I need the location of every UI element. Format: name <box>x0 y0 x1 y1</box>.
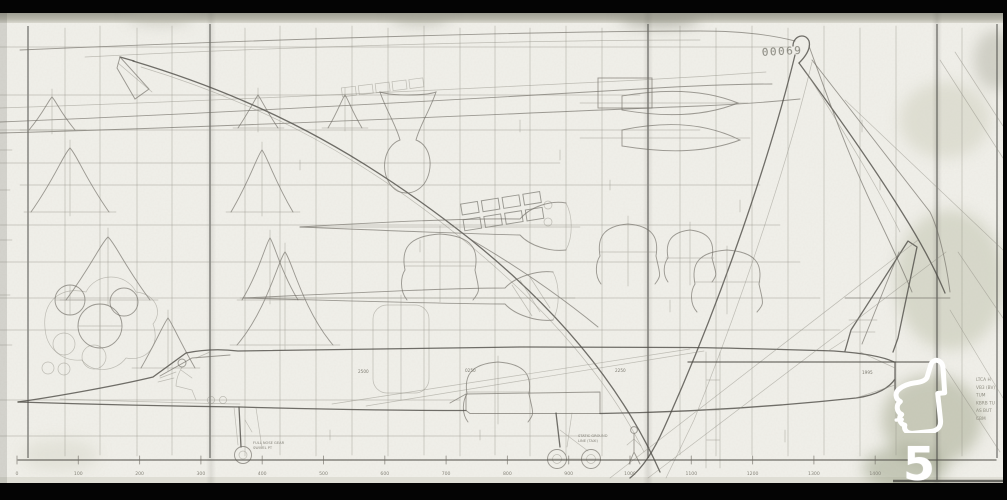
margin-note-line: VB3 (BV) <box>976 385 995 391</box>
margin-note-line: KBRB TU <box>976 400 995 406</box>
scale-station-label: 100 <box>74 471 83 477</box>
scale-station-label: 700 <box>442 471 451 477</box>
handwritten-number: 00069 <box>761 44 802 59</box>
dim-label: 2500 <box>358 369 369 374</box>
scale-station-label: 1400 <box>869 471 881 477</box>
dim-label: 0250 <box>465 368 476 373</box>
scale-station-label: 1300 <box>808 471 820 477</box>
margin-note-line: LTCA H <box>976 377 991 383</box>
blueprint-drawing: 0100200300400500600700800900100011001200… <box>0 13 1003 483</box>
margin-note-line: CBM <box>976 416 986 422</box>
scale-station-label: 400 <box>258 471 267 477</box>
scale-station-label: 800 <box>503 471 512 477</box>
scale-station-label: 0 <box>16 471 19 477</box>
scale-station-label: 300 <box>197 471 206 477</box>
nose-gear-note: FULL NOSE GEAR <box>253 441 285 445</box>
scale-station-label: 1000 <box>624 471 636 477</box>
svg-text:LINE (TAXI): LINE (TAXI) <box>578 439 598 443</box>
dim-label: 2250 <box>615 368 626 373</box>
margin-note-line: TUM <box>975 393 986 399</box>
scale-station-label: 1100 <box>685 471 697 477</box>
letterbox-bottom <box>0 483 1007 500</box>
letterbox-right <box>1003 0 1007 500</box>
dim-label: 1995 <box>862 370 873 375</box>
paper-texture <box>0 13 1003 483</box>
overlay-number: 5 <box>903 441 943 487</box>
thumbs-up-icon <box>888 347 960 433</box>
svg-text:SWIVEL PT: SWIVEL PT <box>253 446 273 450</box>
main-gear-note: STATIC GROUND <box>578 434 608 438</box>
blueprint-scan: 0100200300400500600700800900100011001200… <box>0 13 1003 483</box>
letterbox-top <box>0 0 1007 13</box>
scale-station-label: 900 <box>564 471 573 477</box>
scale-station-label: 600 <box>380 471 389 477</box>
like-button[interactable] <box>888 347 960 433</box>
scale-station-label: 500 <box>319 471 328 477</box>
scale-station-label: 1200 <box>747 471 759 477</box>
margin-note-line: AS BUT <box>976 408 992 414</box>
scale-station-label: 200 <box>135 471 144 477</box>
video-frame: 0100200300400500600700800900100011001200… <box>0 0 1007 500</box>
